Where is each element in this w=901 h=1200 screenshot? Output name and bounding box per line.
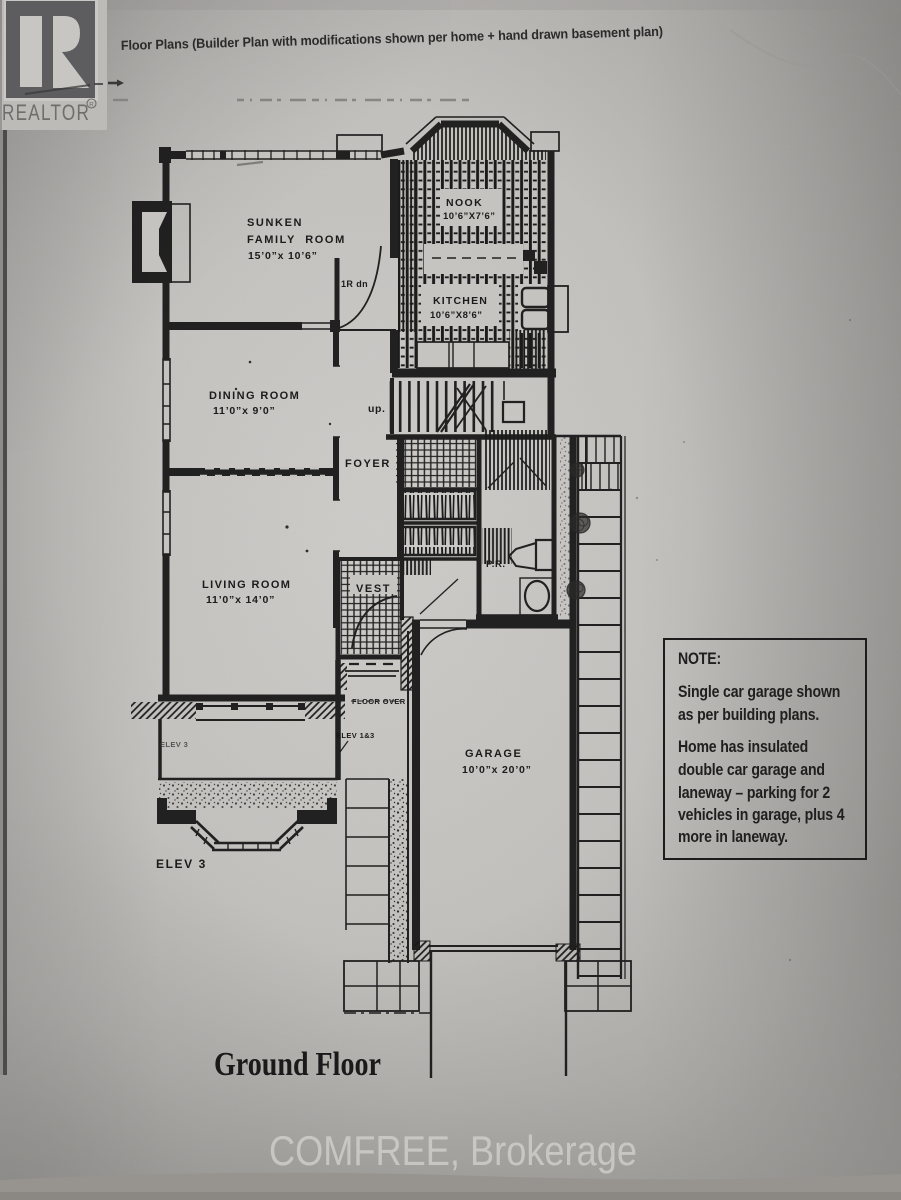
svg-text:Single car garage shown: Single car garage shown <box>678 683 840 701</box>
svg-text:double car garage and: double car garage and <box>678 761 825 779</box>
svg-text:10’0”x 20’0”: 10’0”x 20’0” <box>462 764 532 776</box>
svg-text:ELEV 1&3: ELEV 1&3 <box>336 731 375 740</box>
svg-text:GARAGE: GARAGE <box>465 748 522 760</box>
svg-text:10’6”X7’6”: 10’6”X7’6” <box>443 211 496 222</box>
svg-text:FAMILY ROOM: FAMILY ROOM <box>247 234 346 246</box>
svg-text:ELEV 3: ELEV 3 <box>156 857 207 871</box>
svg-text:11’0”x 9’0”: 11’0”x 9’0” <box>213 405 276 417</box>
svg-text:P.R.: P.R. <box>486 559 506 570</box>
svg-text:as per building plans.: as per building plans. <box>678 706 819 724</box>
svg-text:COMFREE, Brokerage: COMFREE, Brokerage <box>269 1129 637 1175</box>
svg-text:REALTOR: REALTOR <box>2 101 90 126</box>
svg-text:10’6”X8’6”: 10’6”X8’6” <box>430 310 483 321</box>
svg-text:NOOK: NOOK <box>446 197 483 209</box>
svg-text:NOTE:: NOTE: <box>678 650 721 668</box>
svg-text:Home has insulated: Home has insulated <box>678 738 808 756</box>
svg-text:vehicles in garage, plus 4: vehicles in garage, plus 4 <box>678 806 845 824</box>
svg-text:DINING ROOM: DINING ROOM <box>209 390 300 402</box>
svg-text:laneway – parking for 2: laneway – parking for 2 <box>678 784 830 802</box>
svg-text:ELEV 3: ELEV 3 <box>160 740 188 749</box>
svg-text:1R dn: 1R dn <box>341 279 368 289</box>
svg-text:R: R <box>89 101 94 108</box>
svg-text:Ground Floor: Ground Floor <box>214 1044 381 1082</box>
svg-text:LIVING ROOM: LIVING ROOM <box>202 579 291 591</box>
svg-text:FOYER: FOYER <box>345 458 391 470</box>
svg-text:VEST: VEST <box>356 583 391 595</box>
svg-text:11’0”x 14’0”: 11’0”x 14’0” <box>206 594 275 606</box>
svg-text:KITCHEN: KITCHEN <box>433 295 488 307</box>
svg-text:more in laneway.: more in laneway. <box>678 828 788 846</box>
svg-text:15’0”x 10’6”: 15’0”x 10’6” <box>248 250 318 262</box>
svg-text:up.: up. <box>368 403 386 415</box>
svg-text:SUNKEN: SUNKEN <box>247 217 303 229</box>
